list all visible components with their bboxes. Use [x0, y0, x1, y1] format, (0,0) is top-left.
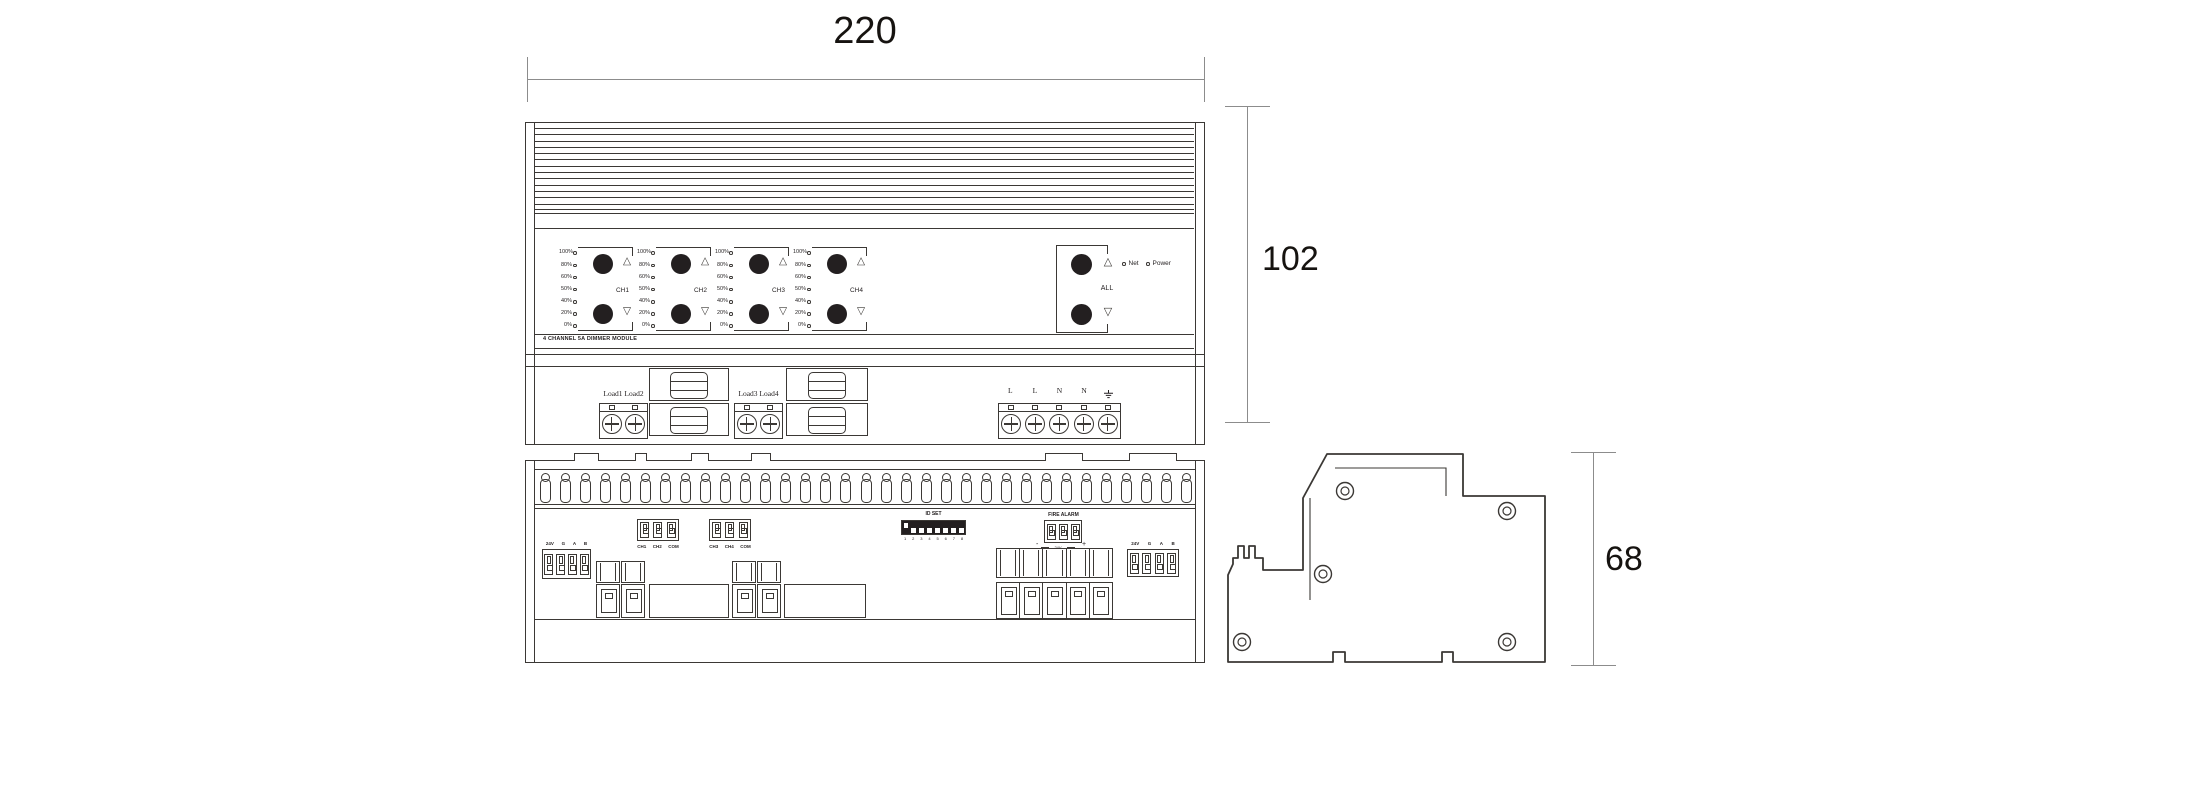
connector-pin: [739, 522, 748, 538]
dip-number: 8: [961, 536, 963, 541]
terminal-strip: [735, 404, 782, 412]
led-indicator: [573, 288, 577, 292]
vent-slot: [780, 473, 789, 502]
bus-connector-left: [542, 549, 591, 579]
breaker-top: [1019, 548, 1043, 578]
bus-pin-label: 24V: [546, 541, 554, 546]
dip-switch-position: [910, 521, 918, 534]
left-rail-line: [534, 461, 535, 662]
load-terminal-block-2: [734, 403, 783, 439]
bottom-view: 24VGAB CH1CH2COM CH3CH4COM: [525, 460, 1205, 663]
terminal-strip: [600, 404, 647, 412]
id-set-group: ID SET 12345678: [901, 511, 966, 541]
load12-label: Load1 Load2: [599, 389, 648, 398]
dim-up-button: [671, 254, 691, 274]
dim-up-button: [827, 254, 847, 274]
breaker-bottom: [1019, 582, 1043, 619]
vent-slot: [1101, 473, 1110, 502]
connector-pin: [568, 554, 577, 575]
led-scale: 100% 80% 60% 50% 40%: [559, 247, 577, 332]
vent-slot: [760, 473, 769, 502]
led-row: 20%: [715, 308, 733, 320]
triangle-up-icon: △: [698, 256, 712, 267]
led-row: 0%: [559, 320, 577, 332]
wire-slot: [632, 405, 638, 410]
dim-depth-label: 68: [1605, 540, 1665, 579]
screw-row: [600, 414, 647, 434]
breaker-top: [621, 561, 645, 583]
led-row: 60%: [793, 271, 811, 283]
dim-width-line: [528, 79, 1205, 80]
dim-height-tick-top: [1225, 106, 1270, 107]
breaker-module: [757, 561, 781, 618]
channel-pin-label: CH4: [725, 544, 734, 549]
led-indicator: [807, 264, 811, 268]
vent-slot: [861, 473, 870, 502]
dim-height-label: 102: [1262, 240, 1342, 279]
connector-pin: [556, 554, 565, 575]
led-indicator: [807, 324, 811, 328]
led-row: 20%: [793, 308, 811, 320]
triangle-down-icon: ▽: [1101, 307, 1115, 318]
led-indicator: [729, 324, 733, 328]
cover-line: [671, 381, 707, 382]
led-percent-label: 50%: [559, 287, 572, 293]
breaker-toggle: [1028, 591, 1036, 597]
terminal-screw: [737, 414, 757, 434]
triangle-up-icon: △: [776, 256, 790, 267]
dip-number: 4: [928, 536, 930, 541]
led-percent-label: 100%: [559, 250, 572, 256]
led-percent-label: 0%: [637, 323, 650, 329]
connector-pin: [725, 522, 734, 538]
led-indicator: [573, 251, 577, 255]
led-percent-label: 0%: [715, 323, 728, 329]
housing-cell: [786, 368, 868, 401]
breaker-top: [996, 548, 1020, 578]
terminal-screw: [1074, 414, 1094, 434]
all-button-group: △ ▽ ALL Net Power: [1056, 245, 1186, 333]
led-percent-label: 100%: [637, 250, 650, 256]
connector-pin: [1155, 553, 1164, 574]
breaker-top: [596, 561, 620, 583]
led-row: 50%: [793, 284, 811, 296]
led-indicator: [729, 251, 733, 255]
bus-pin-label: 24V: [1131, 541, 1139, 546]
led-row: 0%: [793, 320, 811, 332]
front-view: 100% 80% 60% 50% 40%: [525, 122, 1205, 445]
terminal-screw: [1001, 414, 1021, 434]
breaker-bottom: [596, 584, 620, 618]
breaker-window: [626, 589, 642, 613]
breaker-module: [621, 561, 645, 618]
dip-switch-position: [926, 521, 934, 534]
connector-pin: [1059, 524, 1068, 540]
terminal-screw: [1025, 414, 1045, 434]
cover-line: [809, 381, 845, 382]
vent-slot: [921, 473, 930, 502]
led-indicator: [651, 288, 655, 292]
led-indicator: [729, 300, 733, 304]
led-percent-label: 20%: [637, 311, 650, 317]
led-row: 40%: [559, 296, 577, 308]
fire-alarm-minus: -: [1036, 541, 1038, 548]
bus-pin-label: A: [573, 541, 576, 546]
terminal-screw: [1098, 414, 1118, 434]
breaker-module: [732, 561, 756, 618]
led-percent-label: 80%: [559, 263, 572, 269]
housing-cover: [808, 407, 846, 434]
led-indicator: [651, 312, 655, 316]
vent-slot: [840, 473, 849, 502]
vent-slot: [1161, 473, 1170, 502]
cover-line: [671, 425, 707, 426]
bus-connector-labels-left: 24VGAB: [542, 541, 591, 546]
breaker-bottom: [732, 584, 756, 618]
led-indicator: [573, 324, 577, 328]
channel-label: CH2: [687, 287, 707, 294]
vent-slot: [1081, 473, 1090, 502]
led-row: 80%: [715, 259, 733, 271]
dip-number: 5: [936, 536, 938, 541]
cover-line: [809, 390, 845, 391]
led-indicator: [573, 312, 577, 316]
led-row: 100%: [715, 247, 733, 259]
right-rail-line: [1195, 461, 1196, 662]
breaker-window: [1070, 587, 1086, 615]
net-led: [1122, 262, 1126, 266]
breaker-window: [1024, 587, 1040, 615]
connector-pin: [1142, 553, 1151, 574]
led-indicator: [807, 276, 811, 280]
led-percent-label: 20%: [559, 311, 572, 317]
breaker-window: [762, 589, 778, 613]
vent-slot: [961, 473, 970, 502]
all-bracket-tick-top: [1107, 245, 1108, 254]
channel-label: CH4: [843, 287, 863, 294]
triangle-down-icon: ▽: [776, 306, 790, 317]
terminal-tab: [574, 453, 599, 461]
load34-label: Load3 Load4: [734, 389, 783, 398]
fin-end-line2: [535, 213, 1194, 214]
vent-slot: [680, 473, 689, 502]
vent-slot: [1001, 473, 1010, 502]
mains-terminal-labels: LLNN: [998, 386, 1121, 404]
breaker-module: [1066, 548, 1090, 619]
breaker-module: [1042, 548, 1066, 619]
led-indicator: [807, 312, 811, 316]
led-indicator: [651, 324, 655, 328]
vent-strip-top-line: [534, 469, 1195, 470]
dim-height-line: [1247, 106, 1248, 423]
vent-strip: [540, 473, 1190, 502]
vent-slot: [1181, 473, 1190, 502]
cover-line: [809, 416, 845, 417]
vent-slot: [540, 473, 549, 502]
bus-pin-label: G: [562, 541, 566, 546]
title-strip-top-line: [535, 334, 1194, 335]
vent-slot: [740, 473, 749, 502]
led-row: 60%: [559, 271, 577, 283]
screw-row: [735, 414, 782, 434]
channel-pin-label: CH2: [653, 544, 662, 549]
breaker-toggle: [1051, 591, 1059, 597]
vent-slot: [720, 473, 729, 502]
all-up-button: [1071, 254, 1092, 275]
channel-output-connector-2: [709, 519, 751, 541]
led-row: 0%: [637, 320, 655, 332]
channel-output-connector-1: [637, 519, 679, 541]
led-percent-label: 40%: [559, 299, 572, 305]
breaker-top: [757, 561, 781, 583]
vent-slot: [800, 473, 809, 502]
mains-terminal-block: [998, 403, 1121, 439]
blank-panel-2: [784, 584, 866, 618]
breaker-window: [601, 589, 617, 613]
led-percent-label: 0%: [793, 323, 806, 329]
led-row: 40%: [637, 296, 655, 308]
breaker-module: [596, 561, 620, 618]
wire-slot: [609, 405, 615, 410]
channel-pin-label: COM: [668, 544, 679, 549]
led-indicator: [807, 251, 811, 255]
led-percent-label: 20%: [715, 311, 728, 317]
module-title: 4 CHANNEL 5A DIMMER MODULE: [543, 336, 637, 342]
led-row: 100%: [637, 247, 655, 259]
dip-switch-position: [918, 521, 926, 534]
dim-up-button: [593, 254, 613, 274]
breaker-toggle: [1074, 591, 1082, 597]
vent-slot: [620, 473, 629, 502]
led-row: 60%: [637, 271, 655, 283]
connector-pin: [667, 522, 676, 538]
dip-number: 7: [953, 536, 955, 541]
fire-alarm-connector: [1044, 520, 1082, 543]
mains-terminal-letter: L: [1023, 386, 1048, 404]
terminal-tab: [691, 453, 709, 461]
breaker-toggle: [1005, 591, 1013, 597]
vent-slot: [600, 473, 609, 502]
led-indicator: [573, 276, 577, 280]
led-row: 50%: [637, 284, 655, 296]
led-percent-label: 60%: [793, 275, 806, 281]
connector-pin: [653, 522, 662, 538]
mains-terminal-letter: L: [998, 386, 1023, 404]
vent-slot: [660, 473, 669, 502]
vent-slot: [640, 473, 649, 502]
breaker-bottom: [1089, 582, 1113, 619]
channel-group: 100% 80% 60% 50% 40%: [715, 247, 793, 333]
vent-strip-bottom-line: [534, 504, 1195, 505]
led-row: 100%: [793, 247, 811, 259]
body-split-line2: [526, 366, 1204, 367]
breaker-window: [1093, 587, 1109, 615]
vent-slot: [1021, 473, 1030, 502]
led-scale: 100% 80% 60% 50% 40%: [637, 247, 655, 332]
dim-depth-tick-bottom: [1571, 665, 1616, 666]
side-outline: [1228, 454, 1545, 662]
led-indicator: [651, 251, 655, 255]
led-percent-label: 50%: [637, 287, 650, 293]
led-percent-label: 0%: [559, 323, 572, 329]
triangle-up-icon: △: [1101, 257, 1115, 268]
breaker-module: [1019, 548, 1043, 619]
led-percent-label: 80%: [715, 263, 728, 269]
channel-pin-label: CH3: [709, 544, 718, 549]
led-percent-label: 50%: [793, 287, 806, 293]
led-indicator: [807, 288, 811, 292]
housing-cover: [670, 372, 708, 399]
housing-cover: [670, 407, 708, 434]
housing-cell: [786, 403, 868, 436]
led-row: 100%: [559, 247, 577, 259]
power-label: Power: [1153, 261, 1171, 268]
dip-switch-position: [941, 521, 949, 534]
all-down-button: [1071, 304, 1092, 325]
breaker-row: [996, 548, 1112, 619]
wire-slot: [744, 405, 750, 410]
channel-controls: 100% 80% 60% 50% 40%: [559, 247, 871, 333]
channel-connector-labels-2: CH3CH4COM: [706, 544, 754, 549]
vent-strip-bottom-line2: [534, 508, 1195, 509]
load-terminal-block-1: [599, 403, 648, 439]
cover-line: [671, 390, 707, 391]
led-indicator: [651, 276, 655, 280]
wire-slot: [1105, 405, 1111, 410]
id-set-label: ID SET: [901, 511, 966, 517]
breaker-top: [1066, 548, 1090, 578]
title-strip-bottom-line: [535, 348, 1194, 349]
bus-connector-labels-right: 24VGAB: [1127, 541, 1179, 546]
led-row: 80%: [793, 259, 811, 271]
vent-slot: [981, 473, 990, 502]
channel-group: 100% 80% 60% 50% 40%: [559, 247, 637, 333]
cover-line: [809, 425, 845, 426]
led-percent-label: 50%: [715, 287, 728, 293]
connector-pin: [1047, 524, 1056, 540]
dim-up-button: [749, 254, 769, 274]
blank-panel-1: [649, 584, 729, 618]
dim-down-button: [593, 304, 613, 324]
wire-slot: [1056, 405, 1062, 410]
bus-pin-label: G: [1148, 541, 1152, 546]
terminal-tab: [635, 453, 647, 461]
terminal-tab: [1045, 453, 1083, 461]
dim-depth-line: [1593, 452, 1594, 666]
body-split-line1: [526, 354, 1204, 355]
breaker-window: [1001, 587, 1017, 615]
terminal-tab: [751, 453, 771, 461]
led-indicator: [573, 264, 577, 268]
vent-slot: [1041, 473, 1050, 502]
relay-housing-2: [786, 368, 868, 436]
led-row: 60%: [715, 271, 733, 283]
led-row: 0%: [715, 320, 733, 332]
terminal-tab: [1129, 453, 1177, 461]
vent-slot: [560, 473, 569, 502]
mains-terminal-letter: N: [1072, 386, 1097, 404]
dim-down-button: [827, 304, 847, 324]
breaker-window: [1047, 587, 1063, 615]
breaker-toggle: [741, 593, 749, 599]
terminal-screw: [602, 414, 622, 434]
triangle-down-icon: ▽: [854, 306, 868, 317]
led-row: 50%: [715, 284, 733, 296]
breaker-bottom: [996, 582, 1020, 619]
heatsink-fins: [535, 128, 1194, 210]
triangle-down-icon: ▽: [698, 306, 712, 317]
breaker-window: [737, 589, 753, 613]
housing-cover: [808, 372, 846, 399]
vent-slot: [1141, 473, 1150, 502]
led-scale: 100% 80% 60% 50% 40%: [793, 247, 811, 332]
breaker-bottom: [621, 584, 645, 618]
dip-switch-numbers: 12345678: [901, 536, 966, 541]
led-row: 20%: [637, 308, 655, 320]
relay-housing-1: [649, 368, 729, 436]
led-indicator: [651, 264, 655, 268]
vent-slot: [820, 473, 829, 502]
channel-pin-label: COM: [740, 544, 751, 549]
terminal-screw: [625, 414, 645, 434]
led-percent-label: 40%: [715, 299, 728, 305]
led-percent-label: 80%: [637, 263, 650, 269]
breaker-pair-1: [596, 561, 646, 618]
connector-pin: [640, 522, 649, 538]
dip-switch-position: [957, 521, 965, 534]
led-indicator: [729, 312, 733, 316]
right-rail-line: [1195, 123, 1196, 444]
housing-cell: [649, 368, 729, 401]
led-indicator: [729, 288, 733, 292]
dip-switch: [901, 520, 966, 535]
dim-down-button: [749, 304, 769, 324]
connector-pin: [580, 554, 589, 575]
led-percent-label: 80%: [793, 263, 806, 269]
connector-pin: [712, 522, 721, 538]
vent-slot: [1121, 473, 1130, 502]
wire-slot: [767, 405, 773, 410]
led-row: 80%: [559, 259, 577, 271]
vent-slot: [901, 473, 910, 502]
technical-drawing-canvas: 220 102 68 100%: [0, 0, 2200, 790]
breaker-bottom: [757, 584, 781, 618]
channel-label: CH1: [609, 287, 629, 294]
channel-pin-label: CH1: [637, 544, 646, 549]
triangle-up-icon: △: [854, 256, 868, 267]
side-view: [1225, 450, 1550, 670]
all-bracket-tick-bottom: [1107, 324, 1108, 333]
breaker-top: [1042, 548, 1066, 578]
vent-slot: [580, 473, 589, 502]
fire-alarm-plus: +: [1082, 541, 1086, 548]
terminal-screw: [1049, 414, 1069, 434]
net-label: Net: [1129, 261, 1139, 268]
led-percent-label: 60%: [637, 275, 650, 281]
connector-pin: [1167, 553, 1176, 574]
power-led: [1146, 262, 1150, 266]
breaker-toggle: [630, 593, 638, 599]
vent-slot: [700, 473, 709, 502]
led-row: 20%: [559, 308, 577, 320]
breaker-bottom: [1066, 582, 1090, 619]
wire-slot: [1008, 405, 1014, 410]
wire-slot: [1081, 405, 1087, 410]
connector-pin: [1071, 524, 1080, 540]
triangle-up-icon: △: [620, 256, 634, 267]
faceplate-top-line: [535, 228, 1194, 229]
earth-icon: [1096, 386, 1121, 404]
